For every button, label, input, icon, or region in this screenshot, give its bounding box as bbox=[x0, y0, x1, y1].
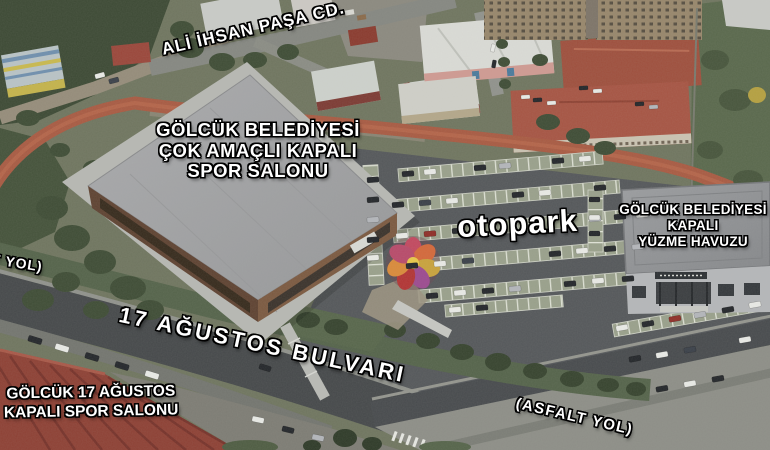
pool-label-line3: YÜZME HAVUZU bbox=[616, 234, 770, 250]
main-hall-label: GÖLCÜK BELEDİYESİ ÇOK AMAÇLI KAPALI SPOR… bbox=[140, 120, 376, 182]
pool-label-line1: GÖLCÜK BELEDİYESİ bbox=[616, 202, 770, 218]
main-hall-label-line3: SPOR SALONU bbox=[140, 161, 376, 182]
pool-label-line2: KAPALI bbox=[616, 218, 770, 234]
main-hall-label-line1: GÖLCÜK BELEDİYESİ bbox=[140, 120, 376, 141]
main-hall-label-line2: ÇOK AMAÇLI KAPALI bbox=[140, 141, 376, 162]
old-hall-label: GÖLCÜK 17 AĞUSTOS KAPALI SPOR SALONU bbox=[2, 381, 181, 423]
old-hall-label-line2: KAPALI SPOR SALONU bbox=[2, 401, 180, 423]
aerial-photo-map: ALİ İHSAN PAŞA CD. GÖLCÜK BELEDİYESİ ÇOK… bbox=[0, 0, 770, 450]
pool-label: GÖLCÜK BELEDİYESİ KAPALI YÜZME HAVUZU bbox=[616, 202, 770, 250]
